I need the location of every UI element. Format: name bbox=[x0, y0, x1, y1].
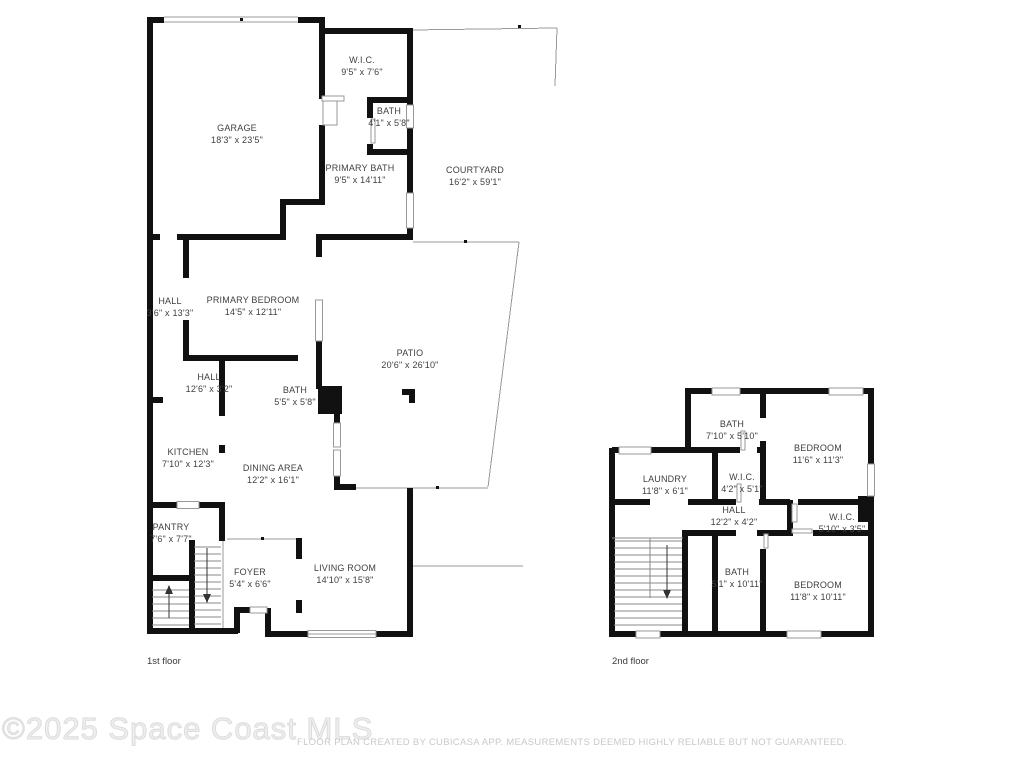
stair-direction-arrow bbox=[663, 545, 671, 599]
room-label-foyer: FOYER 5'4" x 6'6" bbox=[229, 566, 271, 590]
room-label-bedroom-upper: BEDROOM 11'6" x 11'3" bbox=[793, 442, 844, 466]
room-label-wic-small: W.I.C. 4'2" x 5'1" bbox=[721, 471, 763, 495]
first-floor-caption: 1st floor bbox=[147, 656, 181, 667]
room-label-primary-bedroom: PRIMARY BEDROOM 14'5" x 12'11" bbox=[207, 294, 300, 318]
room-label-laundry: LAUNDRY 11'8" x 6'1" bbox=[642, 473, 688, 497]
arrow-down-icon bbox=[663, 590, 671, 599]
room-label-bath-lower: BATH 5'1" x 10'11" bbox=[711, 566, 762, 590]
room-label-dining-area: DINING AREA 12'2" x 16'1" bbox=[243, 462, 303, 486]
door bbox=[764, 534, 768, 548]
room-label-hall-horizontal: HALL 12'6" x 3'2" bbox=[186, 371, 233, 395]
room-label-bath-1: BATH 4'1" x 5'8" bbox=[368, 105, 410, 129]
room-label-courtyard: COURTYARD 16'2" x 59'1" bbox=[446, 164, 504, 188]
room-label-garage: GARAGE 18'3" x 23'5" bbox=[211, 122, 263, 146]
room-label-bedroom-lower: BEDROOM 11'8" x 10'11" bbox=[790, 579, 846, 603]
bath-corner-block bbox=[318, 386, 342, 414]
window bbox=[334, 450, 341, 476]
first-floor-stairs bbox=[152, 547, 221, 625]
window bbox=[636, 631, 660, 638]
floor-plan-page: GARAGE 18'3" x 23'5" W.I.C. 9'5" x 7'6" … bbox=[0, 0, 1024, 768]
door bbox=[323, 100, 337, 125]
door bbox=[792, 529, 812, 533]
first-floor-plan bbox=[147, 17, 557, 638]
second-floor-stairs bbox=[612, 538, 683, 625]
window bbox=[407, 193, 414, 228]
room-label-pantry: PANTRY 7'6" x 7'7" bbox=[150, 521, 192, 545]
room-label-wic-1: W.I.C. 9'5" x 7'6" bbox=[341, 54, 383, 78]
room-label-patio: PATIO 20'6" x 26'10" bbox=[381, 347, 438, 371]
room-label-hall-2f: HALL 12'2" x 4'2" bbox=[711, 504, 758, 528]
room-label-bath-upper: BATH 7'10" x 5'10" bbox=[706, 418, 758, 442]
window bbox=[619, 447, 651, 454]
room-label-bath-2: BATH 5'5" x 5'8" bbox=[274, 384, 316, 408]
second-floor-caption: 2nd floor bbox=[612, 656, 649, 667]
door bbox=[322, 96, 344, 101]
window bbox=[868, 464, 875, 496]
arrow-down-icon bbox=[203, 594, 211, 603]
stair-direction-arrows bbox=[165, 548, 211, 618]
floor-plan-canvas bbox=[0, 0, 1024, 768]
room-label-hall-vertical: HALL 3'6" x 13'3" bbox=[147, 295, 194, 319]
window bbox=[712, 388, 740, 395]
room-label-living-room: LIVING ROOM 14'10" x 15'8" bbox=[314, 562, 376, 586]
entry-door bbox=[250, 607, 267, 613]
window bbox=[334, 423, 341, 447]
door bbox=[792, 504, 797, 522]
cubicasa-disclaimer: FLOOR PLAN CREATED BY CUBICASA APP. MEAS… bbox=[297, 737, 847, 748]
room-label-primary-bath: PRIMARY BATH 9'5" x 14'11" bbox=[326, 162, 395, 186]
window bbox=[787, 631, 821, 638]
window bbox=[316, 300, 323, 341]
window bbox=[829, 388, 863, 395]
patio-column bbox=[402, 389, 415, 403]
window bbox=[177, 502, 199, 509]
room-label-wic-right: W.I.C. 5'10" x 3'5" bbox=[819, 511, 866, 535]
room-label-kitchen: KITCHEN 7'10" x 12'3" bbox=[162, 446, 214, 470]
